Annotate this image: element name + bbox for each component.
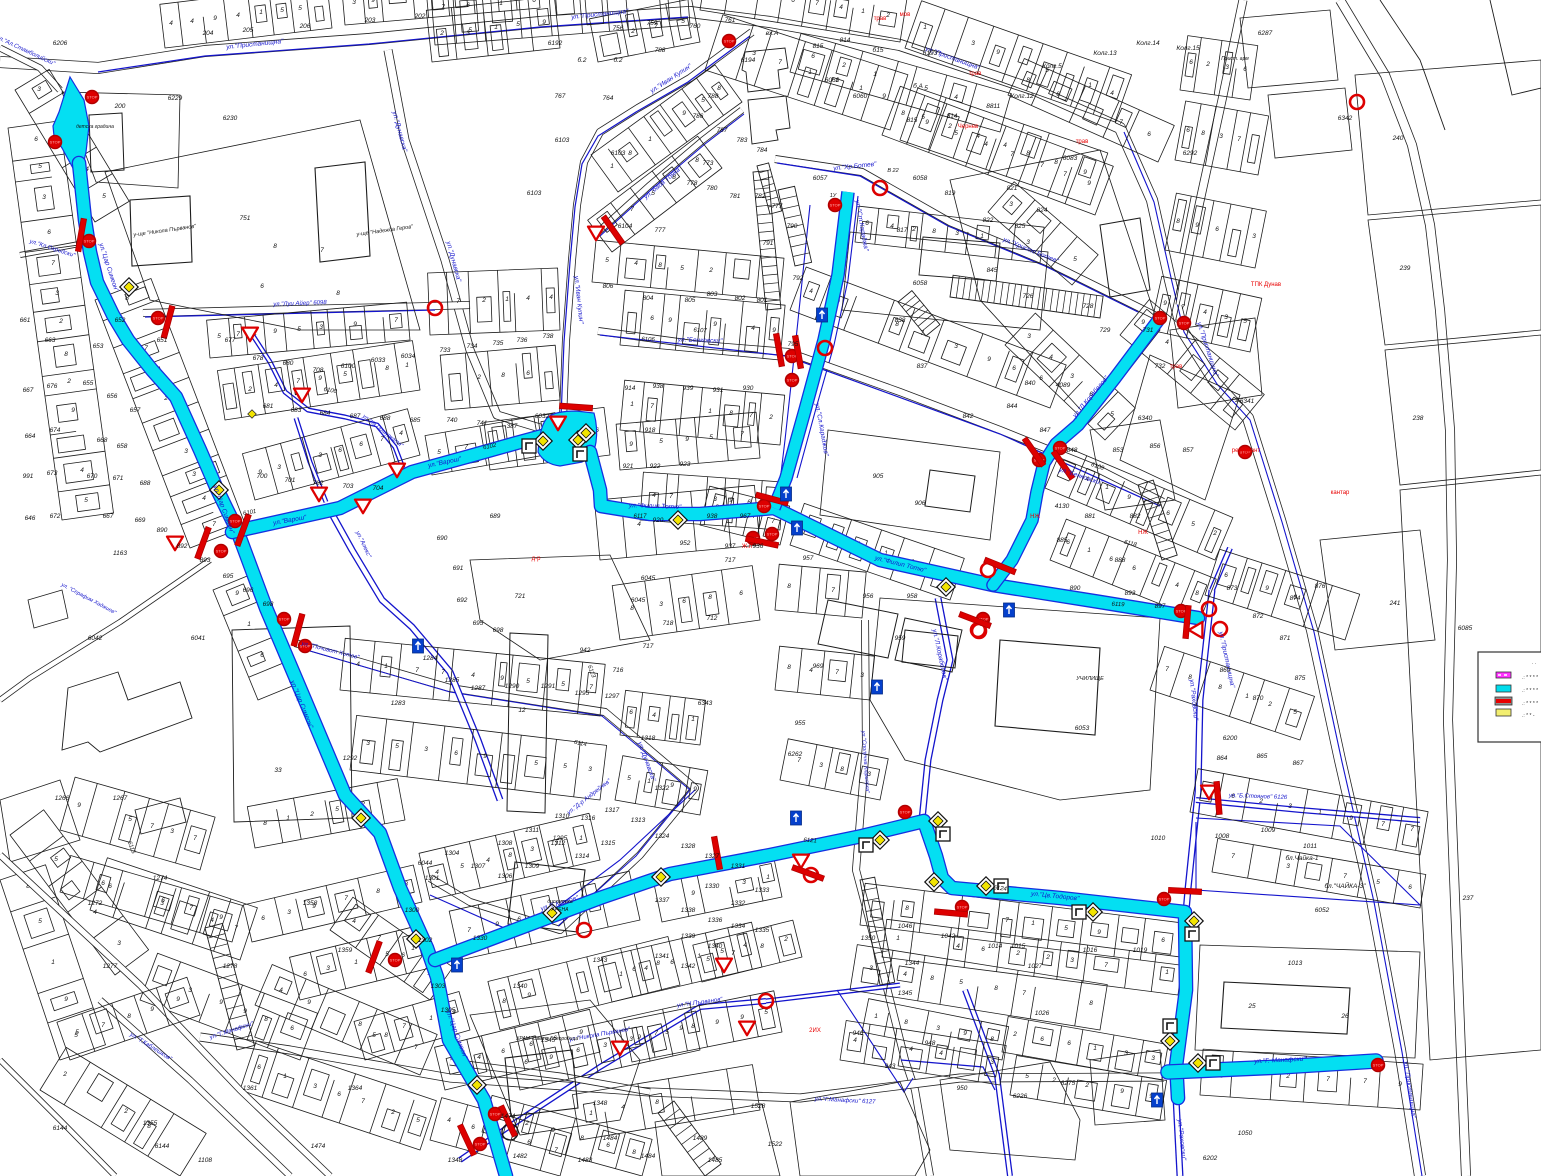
- svg-text:9: 9: [235, 590, 239, 597]
- svg-text:5: 5: [680, 265, 684, 272]
- svg-text:783: 783: [737, 137, 748, 144]
- svg-text:734: 734: [467, 343, 478, 350]
- svg-text:STOP: STOP: [87, 95, 98, 100]
- svg-text:1: 1: [1093, 1045, 1097, 1052]
- svg-text:STOP: STOP: [279, 617, 290, 622]
- svg-text:9: 9: [353, 321, 357, 328]
- svg-text:7: 7: [441, 4, 445, 11]
- svg-text:688: 688: [380, 415, 391, 422]
- svg-text:8: 8: [630, 605, 634, 612]
- svg-text:856: 856: [1150, 443, 1161, 450]
- svg-text:1345: 1345: [898, 990, 913, 997]
- svg-text:6: 6: [682, 598, 686, 605]
- svg-text:646: 646: [25, 515, 36, 522]
- svg-text:1340: 1340: [513, 983, 528, 990]
- svg-text:4089: 4089: [1056, 382, 1071, 389]
- svg-text:5: 5: [1293, 709, 1297, 716]
- svg-text:5: 5: [627, 775, 631, 782]
- svg-text:6192: 6192: [548, 40, 563, 47]
- svg-text:6262: 6262: [788, 751, 803, 758]
- svg-text:956: 956: [863, 593, 874, 600]
- svg-text:1: 1: [766, 874, 770, 881]
- svg-text:664: 664: [25, 433, 36, 440]
- svg-text:5: 5: [280, 7, 284, 14]
- svg-text:931: 931: [713, 387, 724, 394]
- svg-text:1474: 1474: [501, 1113, 516, 1120]
- svg-text:815: 815: [813, 43, 824, 50]
- svg-text:6: 6: [1166, 510, 1170, 517]
- svg-text:STOP: STOP: [1055, 446, 1066, 451]
- svg-text:7: 7: [1410, 826, 1414, 833]
- svg-text:1: 1: [1031, 920, 1035, 927]
- svg-text:875: 875: [1295, 675, 1306, 682]
- svg-text:3: 3: [352, 0, 356, 6]
- svg-text:2: 2: [395, 0, 400, 2]
- svg-text:2: 2: [481, 297, 486, 304]
- svg-text:4130: 4130: [1055, 503, 1070, 510]
- svg-text:3: 3: [1252, 233, 1256, 240]
- svg-text:814: 814: [947, 113, 958, 120]
- svg-text:4: 4: [279, 987, 283, 994]
- svg-text:726: 726: [1023, 293, 1034, 300]
- svg-text:237: 237: [1462, 895, 1474, 902]
- svg-text:8: 8: [263, 820, 267, 827]
- svg-text:4: 4: [1165, 339, 1169, 346]
- svg-text:6193: 6193: [923, 50, 938, 57]
- svg-text:914: 914: [625, 385, 636, 392]
- svg-text:387: 387: [507, 423, 518, 430]
- svg-text:920: 920: [653, 517, 664, 524]
- svg-text:3: 3: [530, 846, 534, 853]
- svg-text:8: 8: [655, 1099, 659, 1106]
- svg-text:1355: 1355: [143, 1120, 158, 1127]
- svg-text:2: 2: [62, 1071, 67, 1078]
- svg-text:1317: 1317: [605, 807, 620, 814]
- svg-text:1: 1: [861, 8, 865, 15]
- svg-text:1284: 1284: [423, 655, 438, 662]
- svg-text:6: 6: [1056, 91, 1060, 98]
- svg-text:5: 5: [605, 257, 609, 264]
- svg-text:882: 882: [1130, 513, 1141, 520]
- svg-text:1: 1: [610, 163, 614, 170]
- svg-text:1267: 1267: [113, 795, 128, 802]
- svg-text:STOP: STOP: [1179, 321, 1190, 326]
- svg-text:5: 5: [563, 763, 567, 770]
- svg-text:STOP: STOP: [1159, 897, 1170, 902]
- svg-text:4: 4: [1175, 582, 1179, 589]
- svg-text:804: 804: [643, 295, 654, 302]
- svg-text:9: 9: [500, 675, 504, 682]
- svg-text:7: 7: [835, 669, 839, 676]
- svg-text:2: 2: [1051, 1077, 1056, 1084]
- svg-text:732: 732: [1155, 363, 1166, 370]
- svg-text:9: 9: [685, 436, 689, 443]
- svg-text:6: 6: [629, 709, 633, 716]
- svg-text:728: 728: [1083, 303, 1094, 310]
- svg-text:4: 4: [202, 495, 206, 502]
- svg-text:4: 4: [1203, 309, 1207, 316]
- svg-text:9: 9: [542, 19, 546, 26]
- svg-text:3: 3: [1286, 863, 1290, 870]
- svg-text:9: 9: [1097, 929, 1101, 936]
- svg-text:1285: 1285: [445, 677, 460, 684]
- svg-text:5: 5: [954, 130, 958, 137]
- svg-text:4: 4: [652, 492, 656, 499]
- svg-text:1: 1: [505, 296, 509, 303]
- svg-text:9: 9: [996, 49, 1000, 56]
- svg-text:205: 205: [242, 27, 254, 34]
- svg-text:6144: 6144: [53, 1125, 68, 1132]
- svg-text:Колг.13: Колг.13: [1093, 50, 1117, 57]
- svg-text:4: 4: [1003, 142, 1007, 149]
- svg-text:6230: 6230: [223, 115, 238, 122]
- svg-text:6342: 6342: [1338, 115, 1353, 122]
- svg-text:STOP: STOP: [1373, 1063, 1384, 1068]
- svg-text:6: 6: [161, 897, 165, 904]
- svg-text:8: 8: [760, 943, 764, 950]
- svg-text:788: 788: [708, 93, 719, 100]
- svg-text:7: 7: [815, 0, 819, 7]
- svg-text:670: 670: [87, 473, 98, 480]
- svg-text:805: 805: [685, 297, 696, 304]
- svg-text:3: 3: [971, 40, 975, 47]
- svg-text:25: 25: [1247, 1003, 1256, 1010]
- svg-text:5: 5: [416, 1117, 420, 1124]
- svg-text:756: 756: [613, 25, 624, 32]
- svg-text:1307: 1307: [471, 863, 486, 870]
- svg-text:696: 696: [243, 587, 254, 594]
- svg-text:6: 6: [260, 652, 264, 659]
- svg-text:8: 8: [990, 1036, 994, 1043]
- svg-text:9: 9: [637, 1034, 641, 1041]
- svg-text:1308: 1308: [498, 840, 513, 847]
- svg-text:677: 677: [225, 337, 236, 344]
- svg-text:790: 790: [787, 223, 798, 230]
- svg-text:777: 777: [772, 203, 783, 210]
- svg-text:1359: 1359: [338, 947, 353, 954]
- svg-text:1: 1: [980, 233, 984, 240]
- svg-text:844: 844: [1007, 403, 1018, 410]
- svg-text:782: 782: [755, 193, 766, 200]
- svg-text:921: 921: [623, 463, 634, 470]
- svg-text:8: 8: [787, 664, 791, 671]
- svg-text:2: 2: [768, 414, 773, 421]
- svg-text:9: 9: [1163, 300, 1167, 307]
- svg-text:1287: 1287: [471, 685, 486, 692]
- svg-text:1322: 1322: [655, 785, 670, 792]
- svg-text:.: * * * *: .: * * * *: [1522, 675, 1538, 681]
- svg-text:6119: 6119: [1111, 602, 1125, 608]
- svg-text:26: 26: [1340, 1013, 1349, 1020]
- svg-text:906: 906: [915, 500, 926, 507]
- svg-text:689: 689: [490, 513, 501, 520]
- svg-text:STOP: STOP: [957, 905, 968, 910]
- svg-text:206: 206: [299, 23, 311, 30]
- svg-text:9: 9: [483, 753, 487, 760]
- svg-text:6085: 6085: [1458, 625, 1473, 632]
- svg-text:8: 8: [508, 852, 512, 859]
- svg-text:9: 9: [987, 356, 991, 363]
- svg-text:9: 9: [213, 15, 217, 22]
- svg-text:7: 7: [1326, 1076, 1330, 1083]
- svg-text:680: 680: [283, 360, 294, 367]
- svg-text:781: 781: [730, 193, 741, 200]
- svg-text:842: 842: [963, 413, 974, 420]
- svg-text:3: 3: [37, 86, 41, 93]
- svg-text:1: 1: [51, 959, 55, 966]
- svg-text:6: 6: [501, 1048, 505, 1055]
- svg-text:8: 8: [729, 410, 733, 417]
- svg-text:7: 7: [1063, 171, 1067, 178]
- svg-text:1330: 1330: [473, 935, 488, 942]
- svg-text:1314: 1314: [575, 853, 590, 860]
- svg-text:9: 9: [563, 0, 567, 2]
- svg-text:1485: 1485: [708, 1157, 723, 1164]
- svg-text:1328: 1328: [681, 843, 696, 850]
- svg-text:Колг.15: Колг.15: [1176, 45, 1200, 52]
- svg-text:5: 5: [516, 21, 520, 28]
- svg-text:5: 5: [84, 497, 88, 504]
- svg-text:2: 2: [1045, 954, 1050, 961]
- svg-text:6052: 6052: [1315, 907, 1330, 914]
- svg-text:943: 943: [885, 1063, 896, 1070]
- svg-text:967: 967: [740, 513, 751, 520]
- svg-text:9: 9: [64, 996, 68, 1003]
- svg-text:6194: 6194: [741, 57, 756, 64]
- svg-text:4: 4: [486, 857, 490, 864]
- svg-text:6202: 6202: [1203, 1155, 1218, 1162]
- svg-text:1: 1: [923, 24, 927, 31]
- svg-text:2: 2: [476, 374, 481, 381]
- svg-text:6: 6: [1132, 565, 1136, 572]
- svg-text:мов: мов: [900, 12, 911, 18]
- svg-text:893: 893: [200, 557, 211, 564]
- svg-text:1334: 1334: [731, 923, 746, 930]
- svg-text:803: 803: [707, 291, 718, 298]
- svg-text:5: 5: [38, 163, 42, 170]
- svg-text:873: 873: [1227, 585, 1238, 592]
- svg-text:4: 4: [839, 4, 843, 11]
- svg-text:872: 872: [1253, 613, 1264, 620]
- svg-text:3: 3: [1070, 373, 1074, 380]
- svg-text:STOP: STOP: [50, 140, 61, 145]
- svg-text:778: 778: [687, 180, 698, 187]
- svg-text:1283: 1283: [391, 700, 406, 707]
- svg-text:6: 6: [47, 229, 51, 236]
- svg-text:712: 712: [707, 615, 718, 622]
- svg-text:695: 695: [473, 620, 484, 627]
- svg-text:9: 9: [549, 1054, 553, 1061]
- svg-text:8: 8: [385, 365, 389, 372]
- svg-text:780: 780: [707, 185, 718, 192]
- svg-text:3: 3: [860, 672, 864, 679]
- svg-text:4: 4: [984, 141, 988, 148]
- svg-text:874: 874: [1290, 595, 1301, 602]
- svg-text:6: 6: [1408, 884, 1412, 891]
- svg-text:3: 3: [170, 828, 174, 835]
- svg-text:дискотека: дискотека: [547, 899, 572, 905]
- svg-text:786: 786: [693, 113, 704, 120]
- svg-text:7: 7: [394, 317, 398, 324]
- svg-text:6: 6: [739, 590, 743, 597]
- svg-text:691: 691: [453, 565, 464, 572]
- svg-text:7: 7: [797, 757, 801, 764]
- svg-text:8: 8: [384, 1032, 388, 1039]
- svg-text:6: 6: [303, 971, 307, 978]
- svg-text:3: 3: [1027, 333, 1031, 340]
- svg-text:2: 2: [390, 1109, 395, 1116]
- svg-text:1522: 1522: [768, 1141, 783, 1148]
- svg-text:1016: 1016: [1083, 947, 1098, 954]
- svg-text:1528: 1528: [751, 1103, 766, 1110]
- svg-text:НЖ: НЖ: [1138, 530, 1148, 536]
- svg-text:7: 7: [1363, 1078, 1367, 1085]
- svg-text:1338: 1338: [681, 907, 696, 914]
- svg-text:трав: трав: [874, 16, 887, 22]
- svg-text:6: 6: [1161, 937, 1165, 944]
- svg-text:STOP: STOP: [153, 316, 164, 321]
- svg-text:5: 5: [1064, 925, 1068, 932]
- svg-text:6: 6: [1215, 226, 1219, 233]
- svg-text:1: 1: [1245, 693, 1249, 700]
- svg-text:8: 8: [905, 905, 909, 912]
- svg-text:STOP: STOP: [759, 504, 770, 509]
- svg-text:3: 3: [1009, 201, 1013, 208]
- svg-text:817: 817: [897, 227, 908, 234]
- svg-text:819: 819: [945, 190, 956, 197]
- svg-text:3: 3: [1225, 64, 1229, 71]
- svg-text:4: 4: [477, 1054, 481, 1061]
- svg-text:733: 733: [440, 347, 451, 354]
- svg-text:4: 4: [909, 1046, 913, 1053]
- svg-text:1278: 1278: [223, 963, 238, 970]
- svg-text:1337: 1337: [655, 897, 670, 904]
- svg-text:1: 1: [630, 401, 634, 408]
- svg-text:1: 1: [283, 1073, 287, 1080]
- svg-text:2: 2: [1212, 530, 1217, 537]
- svg-text:717: 717: [643, 643, 654, 650]
- svg-text:6083: 6083: [1063, 155, 1078, 162]
- svg-text:8: 8: [127, 1013, 131, 1020]
- svg-text:3: 3: [1151, 1055, 1155, 1062]
- svg-text:1050: 1050: [1238, 1130, 1253, 1137]
- svg-text:3: 3: [819, 762, 823, 769]
- svg-text:1: 1: [384, 663, 388, 670]
- svg-text:801: 801: [757, 297, 768, 304]
- svg-text:6045: 6045: [631, 597, 646, 604]
- svg-text:6292: 6292: [1183, 150, 1198, 157]
- svg-text:814: 814: [840, 37, 851, 44]
- svg-text:4: 4: [634, 260, 638, 267]
- svg-text:1: 1: [589, 1110, 593, 1117]
- svg-text:1272: 1272: [88, 900, 103, 907]
- svg-text:1010: 1010: [1151, 835, 1166, 842]
- svg-text:6: 6: [1224, 572, 1228, 579]
- svg-text:1019: 1019: [1133, 947, 1148, 954]
- svg-text:6103: 6103: [527, 190, 542, 197]
- svg-text:4: 4: [93, 909, 97, 916]
- svg-text:6107: 6107: [693, 328, 707, 335]
- svg-text:5: 5: [764, 1009, 768, 1016]
- svg-text:8: 8: [1218, 684, 1222, 691]
- svg-text:1302: 1302: [418, 937, 433, 944]
- svg-text:8: 8: [1089, 1000, 1093, 1007]
- svg-text:698: 698: [263, 601, 274, 608]
- svg-text:8: 8: [358, 1021, 362, 1028]
- svg-text:7: 7: [150, 823, 154, 830]
- svg-text:825: 825: [1015, 223, 1026, 230]
- svg-text:8: 8: [501, 372, 505, 379]
- svg-text:3: 3: [466, 30, 470, 37]
- svg-text:1344: 1344: [905, 960, 920, 967]
- svg-text:АРЕНА: АРЕНА: [551, 907, 570, 913]
- svg-text:845: 845: [987, 267, 998, 274]
- svg-text:761: 761: [725, 17, 736, 24]
- svg-text:б.2: б.2: [577, 56, 586, 64]
- svg-text:731: 731: [1143, 327, 1154, 334]
- svg-text:721: 721: [515, 593, 526, 600]
- svg-text:890: 890: [1070, 585, 1081, 592]
- svg-text:1042: 1042: [941, 933, 956, 940]
- svg-text:7: 7: [1022, 990, 1026, 997]
- svg-text:7: 7: [1119, 119, 1123, 126]
- svg-text:5: 5: [460, 863, 464, 870]
- svg-text:241: 241: [1389, 600, 1401, 607]
- svg-text:876: 876: [1315, 583, 1326, 590]
- svg-text:704: 704: [373, 485, 384, 492]
- svg-text:864: 864: [1217, 755, 1228, 762]
- svg-text:1324: 1324: [655, 833, 670, 840]
- svg-text:6104: 6104: [618, 223, 633, 230]
- svg-text:668: 668: [97, 437, 108, 444]
- svg-text:958: 958: [907, 593, 918, 600]
- svg-text:5: 5: [54, 856, 58, 863]
- svg-text:1015: 1015: [1011, 943, 1026, 950]
- svg-text:1483: 1483: [578, 1157, 593, 1164]
- svg-text:1009: 1009: [1261, 827, 1276, 834]
- svg-text:674: 674: [50, 427, 61, 434]
- svg-text:2: 2: [66, 378, 71, 385]
- svg-text:6: 6: [1012, 365, 1016, 372]
- svg-text:938: 938: [707, 513, 718, 520]
- svg-text:9: 9: [71, 407, 75, 414]
- svg-text:7: 7: [654, 1030, 658, 1037]
- svg-text:792: 792: [793, 275, 804, 282]
- svg-text:1361: 1361: [243, 1085, 258, 1092]
- svg-text:5: 5: [1110, 411, 1114, 418]
- svg-text:3: 3: [742, 879, 746, 886]
- svg-text:8: 8: [932, 228, 936, 235]
- svg-text:667: 667: [103, 513, 114, 520]
- svg-text:УЧИЛИЩЕ: УЧИЛИЩЕ: [1075, 676, 1104, 682]
- svg-text:д-р: д-р: [532, 556, 541, 562]
- svg-text:трав: трав: [1076, 139, 1089, 145]
- svg-text:12: 12: [518, 707, 526, 714]
- svg-text:3: 3: [117, 940, 121, 947]
- svg-text:890: 890: [157, 527, 168, 534]
- svg-text:9: 9: [740, 1014, 744, 1021]
- svg-text:667: 667: [23, 387, 34, 394]
- svg-text:702: 702: [313, 480, 324, 487]
- svg-text:1108: 1108: [198, 1157, 212, 1164]
- svg-text:716: 716: [613, 667, 624, 674]
- svg-text:3: 3: [319, 324, 323, 331]
- svg-text:6058: 6058: [913, 175, 928, 182]
- svg-text:1318: 1318: [641, 735, 656, 742]
- svg-text:б15: б15: [873, 46, 884, 54]
- svg-text:683: 683: [291, 407, 302, 414]
- svg-text:5: 5: [701, 97, 705, 104]
